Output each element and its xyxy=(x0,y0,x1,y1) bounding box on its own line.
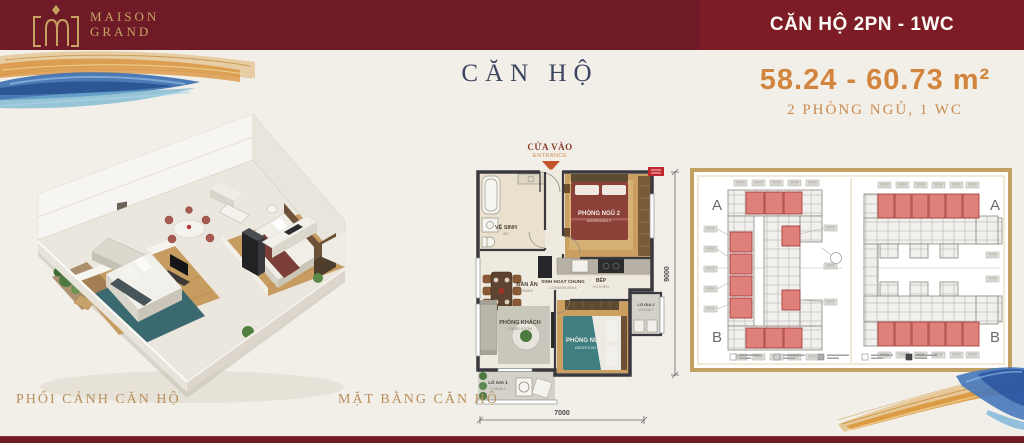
wing-label-right-b: B xyxy=(990,329,1000,346)
room-label-dining-vi: BÀN ĂN xyxy=(516,281,537,288)
wing-label-left-b: B xyxy=(712,329,722,346)
building-key-plan: A B xyxy=(690,168,1012,372)
maison-grand-logo-icon xyxy=(28,4,84,48)
room-label-loggia2-vi: LÔ GIA 2 xyxy=(638,302,656,307)
room-label-kitchen-en: KITCHEN xyxy=(593,285,609,289)
apartment-3d-render xyxy=(22,92,358,404)
room-label-bedroom2-en: BEDROOM 2 xyxy=(587,218,612,223)
room-label-common-vi: SINH HOẠT CHUNG xyxy=(541,279,585,284)
room-label-wc-vi: VỆ SINH xyxy=(495,223,517,231)
dim-height-label: 9000 xyxy=(664,266,671,282)
room-label-wc-en: WC xyxy=(503,232,509,236)
room-label-kitchen-vi: BẾP xyxy=(596,277,607,284)
wing-label-right-a: A xyxy=(990,197,1000,214)
entrance-label-vi: CỬA VÀO xyxy=(505,143,595,153)
bottom-maroon-bar xyxy=(0,436,1024,443)
room-label-bedroom1-en: BEDROOM 1 xyxy=(575,345,600,350)
room-label-dining-en: DINING xyxy=(521,289,534,293)
entrance-label: CỬA VÀO ENTRANCE xyxy=(505,143,595,159)
brand-line1: MAISON xyxy=(90,9,159,24)
room-label-living-vi: PHÒNG KHÁCH xyxy=(499,318,541,326)
bedroom-config: 2 PHÒNG NGỦ, 1 WC xyxy=(730,102,1020,119)
top-banner: MAISON GRAND CĂN HỘ 2PN - 1WC xyxy=(0,0,1024,50)
area-range: 58.24 - 60.73 m² xyxy=(730,64,1020,97)
brush-stroke-bottom-right xyxy=(838,366,1024,437)
brand-name: MAISON GRAND xyxy=(90,9,159,39)
floorplan-caption: MẶT BẰNG CĂN HỘ xyxy=(338,392,499,408)
plan-living-furniture xyxy=(480,300,555,364)
room-label-loggia2-en: LOGGIA 2 xyxy=(639,308,654,312)
brand-line2: GRAND xyxy=(90,24,159,39)
perspective-caption: PHỐI CẢNH CĂN HỘ xyxy=(16,392,181,408)
floor-plan: 7000 9000 VỆ SINH WC PHÒNG NGỦ 2 BEDROOM… xyxy=(468,158,683,430)
room-label-bedroom1-vi: PHÒNG NGỦ 1 xyxy=(566,336,609,344)
room-label-common-en: COMMON AREA xyxy=(549,286,577,290)
brochure-page: MAISON GRAND CĂN HỘ 2PN - 1WC CĂN HỘ 58.… xyxy=(0,0,1024,443)
wing-label-left-a: A xyxy=(712,197,722,214)
page-title: CĂN HỘ xyxy=(380,60,680,88)
unit-highlight-tag xyxy=(648,167,664,176)
unit-type-badge: CĂN HỘ 2PN - 1WC xyxy=(700,0,1024,50)
dim-width-label: 7000 xyxy=(554,410,570,417)
room-label-living-en: LIVING ROOM xyxy=(508,327,532,331)
room-label-loggia1-en: LOGGIA 1 xyxy=(490,387,506,391)
room-label-bedroom2-vi: PHÒNG NGỦ 2 xyxy=(578,209,621,217)
room-label-loggia1-vi: LÔ GIA 1 xyxy=(488,378,508,385)
